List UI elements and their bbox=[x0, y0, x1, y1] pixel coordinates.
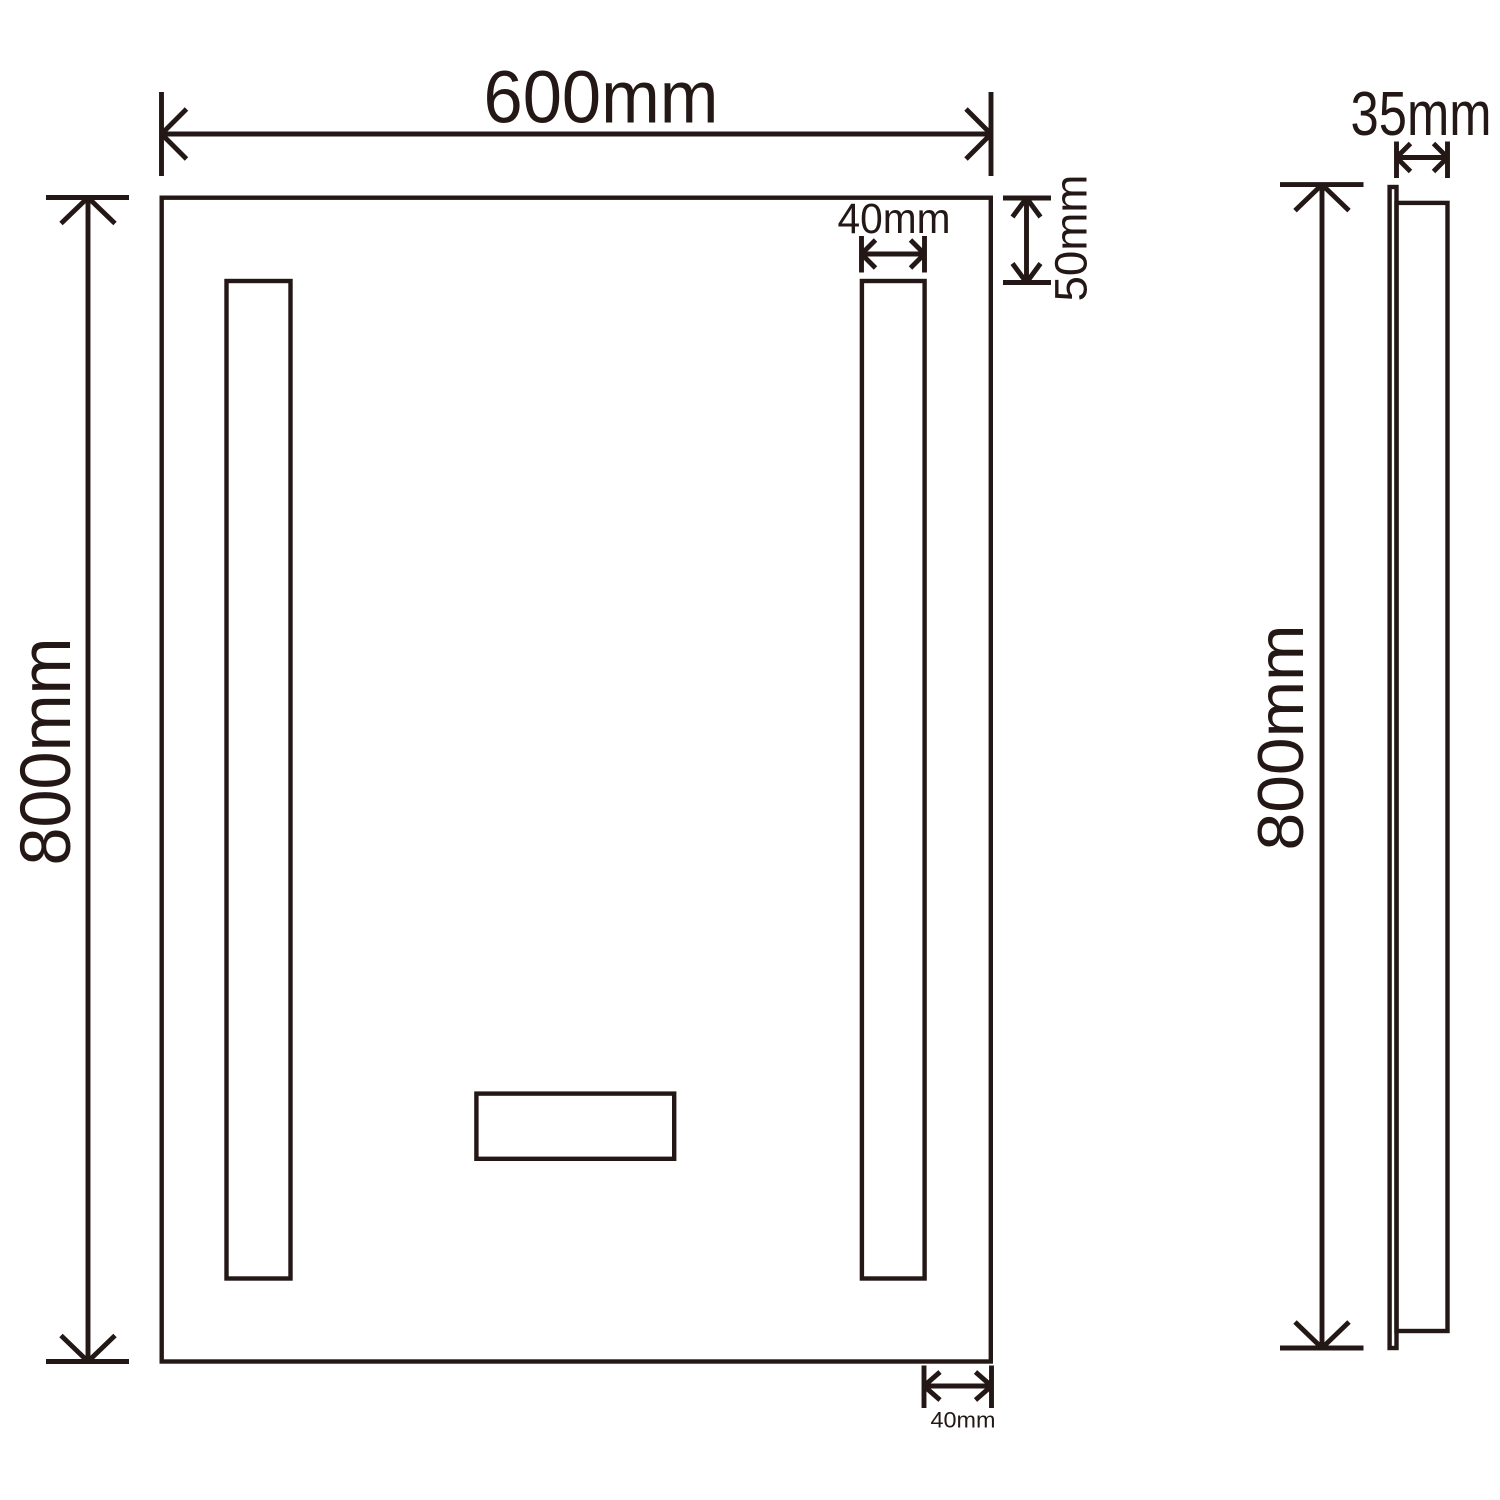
svg-text:800mm: 800mm bbox=[1244, 625, 1317, 851]
svg-text:800mm: 800mm bbox=[7, 638, 86, 866]
svg-text:50mm: 50mm bbox=[1046, 175, 1097, 302]
svg-text:35mm: 35mm bbox=[1351, 80, 1492, 149]
svg-text:40mm: 40mm bbox=[838, 195, 951, 243]
svg-text:40mm: 40mm bbox=[931, 1408, 996, 1433]
svg-text:600mm: 600mm bbox=[484, 56, 719, 139]
